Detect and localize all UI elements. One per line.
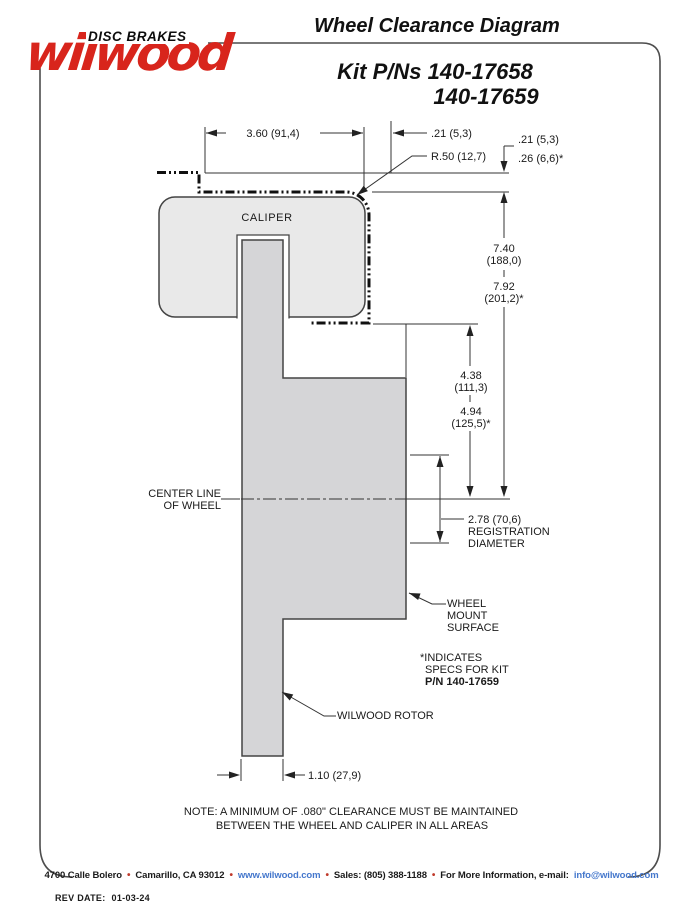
caliper-label: CALIPER xyxy=(241,212,292,224)
dim-outer-radius-kit: 7.92 xyxy=(493,281,514,293)
wheel-mount-label-2: MOUNT xyxy=(447,610,488,622)
registration-label-1: 2.78 (70,6) xyxy=(468,514,521,526)
footer-sales-phone: Sales: (805) 388-1188 xyxy=(334,870,427,881)
rev-date: REV DATE:01-03-24 xyxy=(55,893,156,903)
kit-part-numbers-line2: 140-17659 xyxy=(433,84,538,110)
footnote-line-1: *INDICATES xyxy=(420,652,482,664)
dim-outer-radius-kit-mm: (201,2)* xyxy=(484,293,524,305)
dim-lip-gap-std: .21 (5,3) xyxy=(518,134,559,146)
footer-address: 4700 Calle Bolero xyxy=(44,870,122,881)
dim-outer-radius-std-mm: (188,0) xyxy=(487,255,522,267)
wheel-clearance-page: CALIPER 3.60 (91,4) .21 (5,3) R.50 (12,7… xyxy=(0,0,700,906)
footer-info-text: For More Information, e-mail: xyxy=(440,870,569,881)
footer-city: Camarillo, CA 93012 xyxy=(135,870,224,881)
footer-website-link[interactable]: www.wilwood.com xyxy=(238,870,321,881)
note-line-1: NOTE: A MINIMUM OF .080" CLEARANCE MUST … xyxy=(184,806,518,818)
page-title: Wheel Clearance Diagram xyxy=(314,15,560,38)
footer-separator: • xyxy=(127,870,130,881)
wilwood-logo: wilwood DISC BRAKES xyxy=(26,12,216,72)
dim-corner-radius: R.50 (12,7) xyxy=(431,151,486,163)
rev-date-value: 01-03-24 xyxy=(112,893,150,903)
footer-separator: • xyxy=(229,870,232,881)
dim-inner-radius-kit-mm: (125,5)* xyxy=(451,418,491,430)
dim-outer-radius-std: 7.40 xyxy=(493,243,514,255)
centerline-label-2: OF WHEEL xyxy=(164,500,221,512)
footer-separator: • xyxy=(432,870,435,881)
dim-caliper-width: 3.60 (91,4) xyxy=(246,128,299,140)
footnote-line-3: P/N 140-17659 xyxy=(425,676,499,688)
clearance-diagram: CALIPER 3.60 (91,4) .21 (5,3) R.50 (12,7… xyxy=(0,0,700,906)
wheel-mount-label-3: SURFACE xyxy=(447,622,499,634)
centerline-label-1: CENTER LINE xyxy=(148,488,221,500)
registration-label-2: REGISTRATION xyxy=(468,526,550,538)
dim-lip-gap-kit: .26 (6,6)* xyxy=(518,153,564,165)
rev-date-label: REV DATE: xyxy=(55,893,106,903)
footnote-line-2: SPECS FOR KIT xyxy=(425,664,509,676)
dim-inner-radius-std-mm: (111,3) xyxy=(454,382,487,394)
wheel-mount-label-1: WHEEL xyxy=(447,598,486,610)
kit-part-numbers-line1: Kit P/Ns 140-17658 xyxy=(337,59,533,85)
disc-brakes-tagline: DISC BRAKES xyxy=(86,29,189,44)
footer-contact-bar: 4700 Calle Bolero • Camarillo, CA 93012 … xyxy=(40,870,663,881)
footer-separator: • xyxy=(326,870,329,881)
frame-left xyxy=(40,68,72,877)
registration-label-3: DIAMETER xyxy=(468,538,525,550)
dim-rotor-thickness: 1.10 (27,9) xyxy=(308,770,361,782)
dim-corner-offset: .21 (5,3) xyxy=(431,128,472,140)
dim-inner-radius-kit: 4.94 xyxy=(460,406,481,418)
dim-inner-radius-std: 4.38 xyxy=(460,370,481,382)
note-line-2: BETWEEN THE WHEEL AND CALIPER IN ALL ARE… xyxy=(216,820,488,832)
footer-email-link[interactable]: info@wilwood.com xyxy=(574,870,659,881)
rotor-label: WILWOOD ROTOR xyxy=(337,710,434,722)
